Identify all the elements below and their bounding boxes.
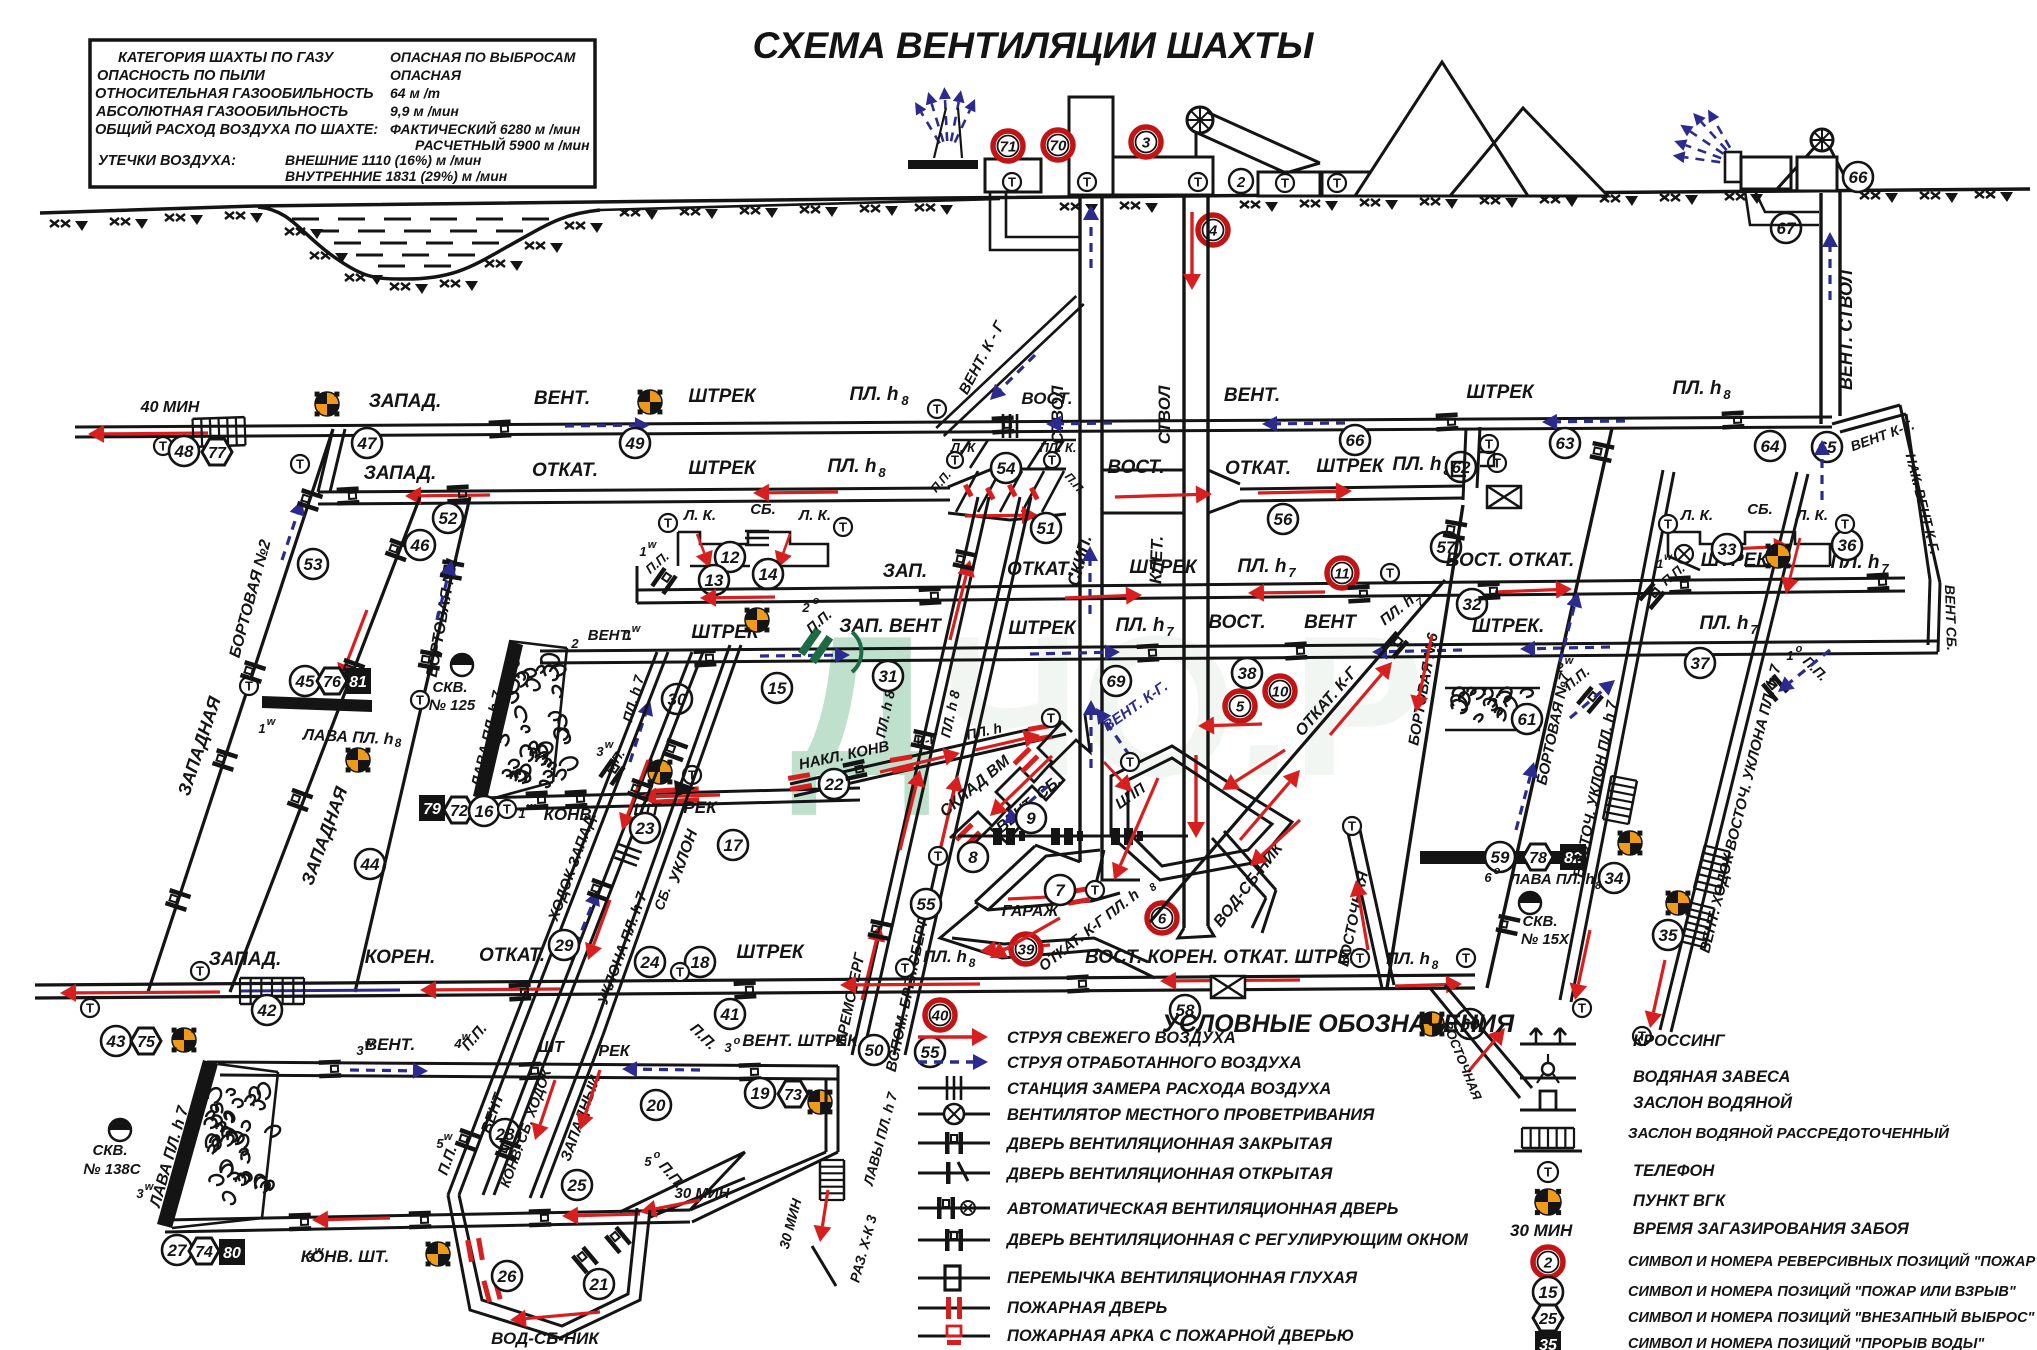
svg-text:1: 1: [258, 721, 265, 736]
svg-text:w: w: [632, 623, 642, 635]
svg-text:T: T: [1664, 517, 1672, 532]
svg-text:8: 8: [969, 956, 976, 970]
svg-text:T: T: [664, 516, 672, 531]
svg-text:w: w: [1664, 552, 1673, 563]
svg-text:ВОСТ. ОТКАТ.: ВОСТ. ОТКАТ.: [1446, 550, 1575, 571]
svg-text:18: 18: [691, 953, 710, 972]
svg-text:1: 1: [639, 544, 646, 559]
svg-text:T: T: [1485, 437, 1493, 452]
svg-text:T: T: [1841, 517, 1849, 532]
svg-text:Л. К.: Л. К.: [1680, 507, 1713, 524]
svg-text:T: T: [951, 453, 959, 468]
svg-text:ЗАПАД.: ЗАПАД.: [369, 391, 442, 412]
svg-text:53: 53: [304, 555, 323, 574]
svg-text:3: 3: [306, 1250, 314, 1265]
svg-text:ПЛ. h: ПЛ. h: [1386, 949, 1430, 968]
svg-text:СБ.: СБ.: [750, 501, 776, 518]
svg-text:ВНУТРЕННИЕ 1831 (29%) м /: ВНУТРЕННИЕ 1831 (29%) м /мин: [285, 168, 508, 184]
svg-text:T: T: [1348, 819, 1356, 834]
svg-text:T: T: [503, 802, 511, 817]
svg-text:T: T: [1126, 755, 1134, 770]
svg-text:61: 61: [1518, 710, 1537, 729]
svg-text:12: 12: [721, 548, 740, 567]
svg-text:ОТКАТ.: ОТКАТ.: [479, 945, 545, 966]
svg-text:T: T: [1462, 951, 1470, 966]
svg-text:5: 5: [1236, 699, 1245, 716]
svg-text:T: T: [901, 961, 909, 976]
svg-text:46: 46: [410, 536, 430, 555]
svg-text:ПЛ. h: ПЛ. h: [923, 947, 967, 966]
svg-text:44: 44: [360, 855, 380, 874]
svg-text:СИМВОЛ И НОМЕРА ПОЗИЦИЙ "ПРОРЫ: СИМВОЛ И НОМЕРА ПОЗИЦИЙ "ПРОРЫВ ВОДЫ": [1628, 1334, 1985, 1350]
svg-text:77: 77: [208, 445, 227, 462]
svg-text:2: 2: [801, 600, 810, 615]
svg-text:75: 75: [137, 1034, 156, 1051]
svg-text:T: T: [1386, 566, 1394, 581]
svg-text:T: T: [1091, 883, 1099, 898]
svg-text:8: 8: [395, 736, 402, 750]
svg-text:T: T: [1083, 175, 1091, 190]
svg-text:11: 11: [1334, 566, 1350, 583]
svg-text:o: o: [1796, 643, 1803, 655]
svg-text:ВЕНТ.: ВЕНТ.: [1224, 385, 1280, 406]
svg-text:5: 5: [644, 1154, 652, 1169]
svg-text:ВОСТ.: ВОСТ.: [1208, 612, 1265, 633]
svg-text:o: o: [813, 595, 820, 607]
svg-text:8: 8: [878, 465, 886, 480]
svg-text:2: 2: [1555, 660, 1564, 675]
svg-text:15: 15: [1539, 1283, 1558, 1302]
svg-text:25: 25: [1538, 1311, 1558, 1328]
svg-text:66: 66: [1346, 431, 1365, 450]
svg-text:ЗАСЛОН ВОДЯНОЙ РАССРЕДОТОЧЕННЫ: ЗАСЛОН ВОДЯНОЙ РАССРЕДОТОЧЕННЫЙ: [1628, 1124, 1950, 1142]
svg-text:ВОДЯНАЯ ЗАВЕСА: ВОДЯНАЯ ЗАВЕСА: [1633, 1068, 1790, 1086]
svg-text:Л. К.: Л. К.: [1795, 507, 1828, 524]
svg-text:w: w: [267, 716, 277, 728]
svg-text:T: T: [1008, 175, 1016, 190]
svg-text:ТЕЛЕФОН: ТЕЛЕФОН: [1633, 1162, 1715, 1180]
svg-text:СБ.: СБ.: [1747, 501, 1773, 518]
svg-text:ПЛ. h: ПЛ. h: [1238, 556, 1287, 577]
svg-text:Л. К.: Л. К.: [683, 507, 716, 524]
svg-text:74: 74: [195, 1244, 213, 1261]
svg-text:27: 27: [167, 1241, 188, 1260]
svg-text:ВЕНТ: ВЕНТ: [1304, 612, 1357, 633]
svg-text:42: 42: [257, 1001, 277, 1020]
svg-text:o: o: [1494, 865, 1501, 877]
svg-text:ДВЕРЬ ВЕНТИЛЯЦИОННАЯ С РЕГУЛИР: ДВЕРЬ ВЕНТИЛЯЦИОННАЯ С РЕГУЛИРУЮЩИМ ОКНО…: [1005, 1231, 1469, 1249]
svg-text:ПЛ. h: ПЛ. h: [828, 456, 877, 477]
svg-text:36: 36: [1838, 536, 1857, 555]
svg-text:СКВ.: СКВ.: [1522, 913, 1557, 930]
svg-text:ВРЕМЯ ЗАГАЗИРОВАНИЯ ЗАБОЯ: ВРЕМЯ ЗАГАЗИРОВАНИЯ ЗАБОЯ: [1633, 1220, 1910, 1238]
svg-text:T: T: [1047, 711, 1055, 726]
svg-text:СТВОЛ: СТВОЛ: [1155, 385, 1174, 444]
svg-text:РЕК: РЕК: [683, 798, 718, 817]
svg-text:22: 22: [824, 775, 844, 794]
svg-text:СХЕМА ВЕНТИЛЯЦИИ ШАХТЫ: СХЕМА ВЕНТИЛЯЦИИ ШАХТЫ: [753, 25, 1315, 66]
svg-text:T: T: [676, 965, 684, 980]
svg-text:T: T: [839, 520, 847, 535]
svg-text:Л. К.: Л. К.: [798, 507, 831, 524]
svg-text:СИМВОЛ И НОМЕРА РЕВЕРСИВНЫХ ПО: СИМВОЛ И НОМЕРА РЕВЕРСИВНЫХ ПОЗИЦИЙ "ПОЖ…: [1628, 1252, 2037, 1270]
svg-text:7: 7: [1288, 565, 1296, 580]
svg-text:ДВЕРЬ ВЕНТИЛЯЦИОННАЯ ОТКРЫТАЯ: ДВЕРЬ ВЕНТИЛЯЦИОННАЯ ОТКРЫТАЯ: [1005, 1165, 1333, 1183]
svg-text:13: 13: [705, 571, 724, 590]
svg-text:40: 40: [931, 1008, 949, 1025]
svg-text:ПЛ. h: ПЛ. h: [1116, 615, 1165, 636]
svg-text:39: 39: [1018, 942, 1035, 959]
svg-text:ЗАСЛОН ВОДЯНОЙ: ЗАСЛОН ВОДЯНОЙ: [1633, 1092, 1793, 1112]
svg-text:ОТКАТ.: ОТКАТ.: [532, 460, 598, 481]
svg-text:ДВЕРЬ ВЕНТИЛЯЦИОННАЯ ЗАКРЫТАЯ: ДВЕРЬ ВЕНТИЛЯЦИОННАЯ ЗАКРЫТАЯ: [1005, 1135, 1333, 1153]
svg-text:w: w: [444, 1131, 454, 1143]
svg-text:ЗАПАД.: ЗАПАД.: [209, 949, 282, 970]
svg-text:16: 16: [475, 802, 494, 821]
svg-text:2: 2: [570, 636, 579, 651]
svg-text:8: 8: [1723, 387, 1731, 402]
svg-text:71: 71: [1000, 139, 1017, 156]
svg-text:T: T: [1048, 453, 1056, 468]
svg-text:СТАНЦИЯ ЗАМЕРА РАСХОДА ВОЗДУХА: СТАНЦИЯ ЗАМЕРА РАСХОДА ВОЗДУХА: [1007, 1080, 1331, 1098]
svg-text:1: 1: [518, 806, 525, 821]
svg-text:ОПАСНОСТЬ ПО ПЫЛИ: ОПАСНОСТЬ ПО ПЫЛИ: [97, 68, 265, 84]
svg-text:2: 2: [1543, 1255, 1553, 1272]
svg-text:29: 29: [554, 936, 574, 955]
svg-text:w: w: [365, 1038, 375, 1050]
svg-text:51: 51: [1037, 519, 1056, 538]
svg-text:ШТРЕК: ШТРЕК: [1466, 382, 1535, 403]
svg-text:14: 14: [759, 565, 778, 584]
svg-text:T: T: [86, 1001, 94, 1016]
svg-text:8: 8: [901, 393, 909, 408]
svg-text:КАТЕГОРИЯ ШАХТЫ ПО ГАЗУ: КАТЕГОРИЯ ШАХТЫ ПО ГАЗУ: [118, 50, 334, 66]
svg-text:38: 38: [1238, 664, 1257, 683]
svg-text:ПЛ. h: ПЛ. h: [1673, 378, 1722, 399]
svg-text:ВОСТ.: ВОСТ.: [1021, 389, 1072, 408]
svg-text:T: T: [933, 402, 941, 417]
svg-text:РЕК: РЕК: [598, 1043, 630, 1060]
svg-text:СИМВОЛ И НОМЕРА ПОЗИЦИЙ "ПОЖАР: СИМВОЛ И НОМЕРА ПОЗИЦИЙ "ПОЖАР ИЛИ ВЗРЫВ…: [1628, 1282, 2017, 1300]
svg-text:T: T: [1194, 175, 1202, 190]
svg-text:T: T: [1333, 176, 1341, 191]
svg-text:69: 69: [1107, 672, 1126, 691]
svg-text:3: 3: [1142, 135, 1151, 152]
svg-text:21: 21: [589, 1275, 609, 1294]
svg-text:34: 34: [1605, 869, 1624, 888]
svg-text:T: T: [1281, 176, 1289, 191]
svg-text:w: w: [1565, 655, 1575, 667]
svg-text:w: w: [462, 1031, 472, 1043]
svg-text:70: 70: [1050, 138, 1067, 155]
svg-text:35: 35: [1539, 1337, 1558, 1350]
svg-text:ОПАСНАЯ: ОПАСНАЯ: [390, 67, 462, 83]
svg-text:3: 3: [356, 1043, 364, 1058]
svg-text:1: 1: [1786, 648, 1793, 663]
svg-text:80: 80: [223, 1245, 241, 1262]
svg-text:w: w: [315, 1245, 325, 1257]
svg-text:26: 26: [497, 1267, 517, 1286]
svg-text:ШТРЕК.: ШТРЕК.: [1472, 616, 1545, 637]
svg-text:ЗАПАД.: ЗАПАД.: [364, 463, 437, 484]
svg-text:10: 10: [1272, 684, 1289, 701]
svg-text:8: 8: [1432, 958, 1439, 972]
svg-text:T: T: [1544, 1165, 1552, 1180]
svg-text:35: 35: [1659, 926, 1678, 945]
svg-text:67: 67: [1777, 219, 1797, 238]
svg-text:7: 7: [1055, 881, 1066, 900]
svg-text:АВТОМАТИЧЕСКАЯ ВЕНТИЛЯЦИОННАЯ: АВТОМАТИЧЕСКАЯ ВЕНТИЛЯЦИОННАЯ ДВЕРЬ: [1006, 1200, 1399, 1218]
svg-text:ПЛ. К.: ПЛ. К.: [1039, 440, 1076, 455]
svg-text:АБСОЛЮТНАЯ ГАЗООБИЛЬНОСТЬ: АБСОЛЮТНАЯ ГАЗООБИЛЬНОСТЬ: [95, 104, 348, 120]
svg-text:66: 66: [1849, 168, 1868, 187]
svg-text:9: 9: [1026, 809, 1036, 828]
svg-text:3: 3: [724, 1040, 732, 1055]
svg-text:43: 43: [106, 1032, 126, 1051]
svg-text:ПОЖАРНАЯ АРКА С ПОЖАРНОЙ ДВЕР: ПОЖАРНАЯ АРКА С ПОЖАРНОЙ ДВЕРЬЮ: [1007, 1325, 1354, 1345]
svg-text:52: 52: [439, 509, 458, 528]
svg-text:49: 49: [625, 434, 645, 453]
svg-text:T: T: [159, 439, 167, 454]
svg-text:20: 20: [646, 1096, 666, 1115]
svg-text:w: w: [648, 539, 658, 551]
svg-text:47: 47: [357, 434, 378, 453]
svg-text:ШТРЕК: ШТРЕК: [688, 386, 757, 407]
svg-text:№ 138С: № 138С: [83, 1161, 141, 1178]
svg-text:25: 25: [567, 1176, 587, 1195]
svg-text:ФАКТИЧЕСКИЙ 6280 м /мин: ФАКТИЧЕСКИЙ 6280 м /мин: [390, 120, 581, 137]
svg-text:55: 55: [921, 1043, 940, 1062]
svg-text:w: w: [145, 1181, 155, 1193]
svg-text:ВОСТ.: ВОСТ.: [1107, 457, 1164, 478]
svg-text:2: 2: [1236, 174, 1246, 191]
svg-text:19: 19: [751, 1084, 770, 1103]
svg-text:ВЕНТ. СТВОЛ: ВЕНТ. СТВОЛ: [1836, 269, 1856, 390]
svg-text:w: w: [527, 801, 537, 813]
svg-text:50: 50: [865, 1041, 884, 1060]
svg-text:30 МИН: 30 МИН: [675, 1185, 731, 1202]
svg-text:48: 48: [174, 442, 194, 461]
svg-text:ОБЩИЙ РАСХОД ВОЗДУХА ПО ШАХТЕ:: ОБЩИЙ РАСХОД ВОЗДУХА ПО ШАХТЕ:: [95, 120, 378, 138]
svg-text:T: T: [296, 457, 304, 472]
svg-text:СКВ.: СКВ.: [432, 679, 467, 696]
svg-text:№ 125: № 125: [429, 697, 476, 714]
svg-text:33: 33: [1718, 540, 1737, 559]
svg-text:6: 6: [1484, 870, 1492, 885]
svg-text:T: T: [196, 964, 204, 979]
svg-text:37: 37: [1691, 654, 1711, 673]
svg-text:79: 79: [423, 801, 441, 818]
svg-text:ШТРЕК: ШТРЕК: [736, 942, 805, 963]
svg-text:T: T: [1356, 951, 1364, 966]
svg-text:ШТРЕК: ШТРЕК: [1129, 557, 1198, 578]
svg-text:23: 23: [635, 819, 655, 838]
svg-text:T: T: [1578, 1001, 1586, 1016]
svg-text:8: 8: [968, 848, 978, 867]
svg-text:72: 72: [450, 803, 468, 820]
svg-text:ПЕРЕМЫЧКА ВЕНТИЛЯЦИОННАЯ ГЛУХА: ПЕРЕМЫЧКА ВЕНТИЛЯЦИОННАЯ ГЛУХАЯ: [1007, 1269, 1358, 1287]
svg-text:ШТРЕК: ШТРЕК: [1008, 618, 1077, 639]
svg-text:78: 78: [1529, 850, 1547, 867]
svg-text:63: 63: [1556, 434, 1575, 453]
svg-text:45: 45: [295, 672, 315, 691]
svg-text:ВЕНТ. ШТРЕК: ВЕНТ. ШТРЕК: [742, 1031, 859, 1050]
svg-text:ЗАП.: ЗАП.: [883, 561, 927, 582]
svg-text:ВЕНТ СБ.: ВЕНТ СБ.: [1942, 585, 1960, 651]
svg-text:55: 55: [917, 895, 936, 914]
svg-text:81: 81: [349, 674, 367, 691]
svg-text:15: 15: [768, 679, 787, 698]
svg-text:СТРУЯ ОТРАБОТАННОГО ВОЗДУХА: СТРУЯ ОТРАБОТАННОГО ВОЗДУХА: [1007, 1054, 1302, 1072]
svg-text:СИМВОЛ И НОМЕРА ПОЗИЦИЙ "ВНЕЗА: СИМВОЛ И НОМЕРА ПОЗИЦИЙ "ВНЕЗАПНЫЙ ВЫБРО…: [1628, 1308, 2036, 1326]
svg-text:ВОД-СБ-НИК: ВОД-СБ-НИК: [491, 1329, 600, 1348]
svg-text:T: T: [934, 849, 942, 864]
svg-text:7: 7: [1166, 624, 1174, 639]
svg-text:40 МИН: 40 МИН: [140, 399, 200, 416]
svg-text:9,9 м /мин: 9,9 м /мин: [390, 103, 459, 119]
svg-text:ВЕНТ.: ВЕНТ.: [534, 388, 590, 409]
svg-text:ВОСТ. КОРЕН. ОТКАТ. ШТРЕК: ВОСТ. КОРЕН. ОТКАТ. ШТРЕК: [1085, 947, 1363, 968]
svg-text:ПЛ. h: ПЛ. h: [850, 384, 899, 405]
svg-text:КОРЕН.: КОРЕН.: [365, 947, 436, 968]
svg-text:76: 76: [323, 674, 341, 691]
svg-text:ОПАСНАЯ ПО ВЫБРОСАМ: ОПАСНАЯ ПО ВЫБРОСАМ: [390, 49, 576, 65]
svg-text:T: T: [416, 693, 424, 708]
svg-text:СКВ.: СКВ.: [92, 1142, 127, 1159]
svg-text:56: 56: [1274, 510, 1293, 529]
svg-text:РАСЧЕТНЫЙ 5900 м /мин: РАСЧЕТНЫЙ 5900 м /мин: [415, 136, 590, 153]
svg-text:64 м /m: 64 м /m: [390, 85, 440, 101]
svg-text:ОТКАТ.: ОТКАТ.: [1225, 458, 1291, 479]
svg-text:ВНЕШНИЕ 1110 (16%) м: ВНЕШНИЕ 1110 (16%) м /мин: [285, 152, 482, 168]
svg-text:УТЕЧКИ ВОЗДУХА:: УТЕЧКИ ВОЗДУХА:: [98, 153, 236, 169]
svg-text:ПУНКТ ВГК: ПУНКТ ВГК: [1633, 1192, 1727, 1210]
svg-text:ВЕНТ.: ВЕНТ.: [588, 627, 632, 644]
svg-text:o: o: [654, 1149, 661, 1161]
svg-text:ГАРАЖ: ГАРАЖ: [1002, 903, 1060, 920]
svg-text:3: 3: [596, 744, 604, 759]
svg-text:№ 15Х: № 15Х: [1521, 931, 1570, 948]
svg-text:41: 41: [720, 1005, 740, 1024]
svg-text:ПЛ. h: ПЛ. h: [1393, 454, 1442, 475]
svg-text:24: 24: [640, 953, 660, 972]
svg-text:54: 54: [997, 459, 1016, 478]
svg-text:ОТНОСИТЕЛЬНАЯ ГАЗООБИЛЬНОСТЬ: ОТНОСИТЕЛЬНАЯ ГАЗООБИЛЬНОСТЬ: [95, 86, 374, 102]
svg-text:30 МИН: 30 МИН: [1510, 1221, 1573, 1240]
svg-text:o: o: [734, 1035, 741, 1047]
svg-text:1: 1: [1657, 557, 1664, 571]
svg-text:ШТРЕК: ШТРЕК: [688, 458, 757, 479]
svg-text:ВЕНТИЛЯТОР МЕСТНОГО ПРОВЕТРИВА: ВЕНТИЛЯТОР МЕСТНОГО ПРОВЕТРИВАНИЯ: [1007, 1106, 1375, 1124]
svg-text:СТРУЯ СВЕЖЕГО ВОЗДУХА: СТРУЯ СВЕЖЕГО ВОЗДУХА: [1007, 1029, 1236, 1047]
svg-text:64: 64: [1761, 437, 1780, 456]
svg-text:ШТРЕК: ШТРЕК: [1316, 456, 1385, 477]
svg-text:17: 17: [724, 836, 744, 855]
svg-text:ПОЖАРНАЯ ДВЕРЬ: ПОЖАРНАЯ ДВЕРЬ: [1007, 1299, 1168, 1317]
svg-text:3: 3: [136, 1186, 144, 1201]
svg-text:73: 73: [784, 1087, 802, 1104]
svg-text:ПЛ. h: ПЛ. h: [1700, 613, 1749, 634]
svg-text:31: 31: [879, 667, 898, 686]
svg-text:КРОССИНГ: КРОССИНГ: [1633, 1032, 1726, 1050]
